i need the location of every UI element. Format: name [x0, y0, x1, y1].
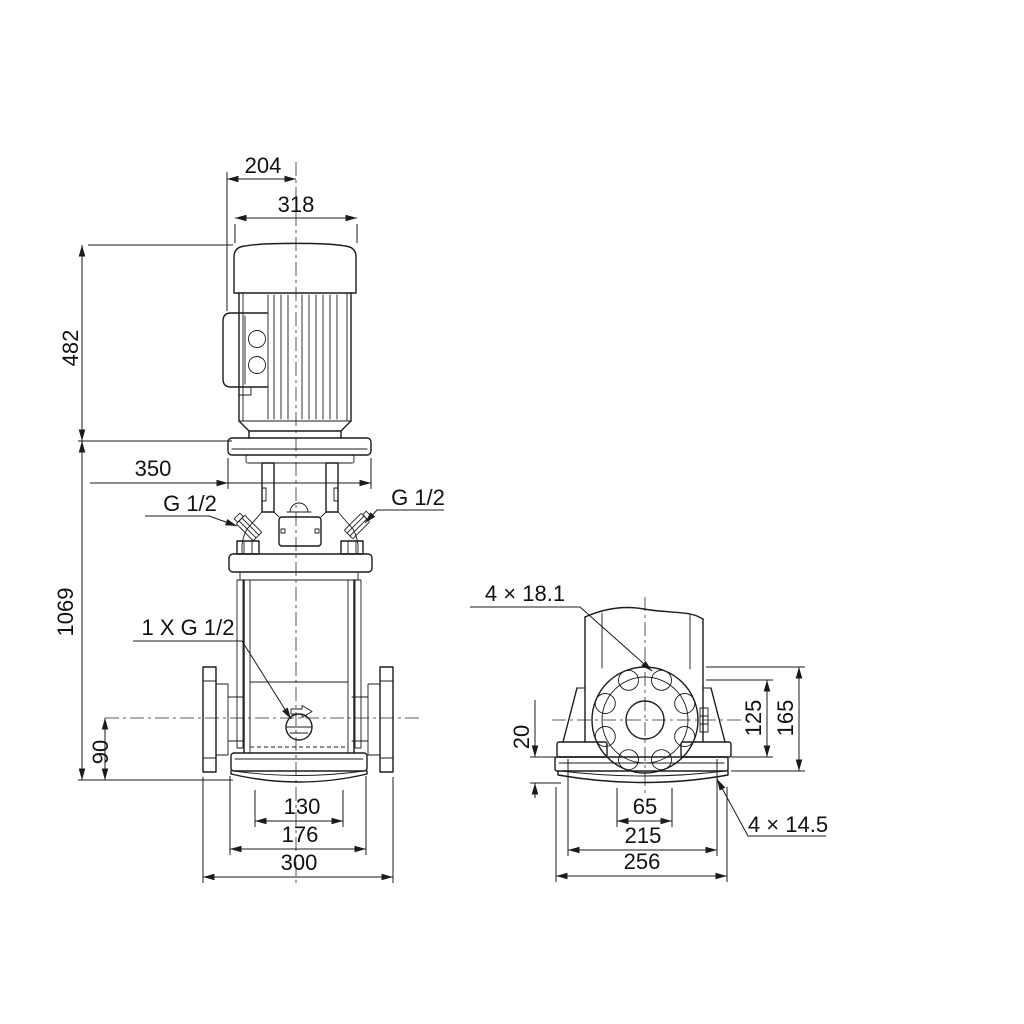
flange-holes-label: 4 × 18.1	[485, 581, 565, 606]
pump-head-plate	[229, 554, 372, 580]
side-stool	[557, 688, 731, 757]
dim-215-label: 215	[625, 823, 662, 848]
drain-plug	[286, 706, 312, 741]
dim-90-label: 90	[88, 740, 113, 764]
flow-direction-icon	[291, 706, 312, 718]
dim-318-label: 318	[278, 192, 315, 217]
motor-body	[239, 293, 351, 438]
dim-65-label: 65	[633, 794, 657, 819]
dim-482-label: 482	[58, 330, 83, 367]
motor-stool	[242, 463, 358, 554]
discharge-flange	[352, 667, 393, 772]
dim-350: 350	[90, 456, 371, 489]
base-holes-label: 4 × 14.5	[748, 812, 828, 837]
pump-dimensional-drawing: 204 318 482 1069 350 90 G 1	[0, 0, 1024, 1024]
staybolt-right	[355, 580, 361, 748]
dim-204-label: 204	[245, 153, 282, 178]
base-holes-callout: 4 × 14.5	[717, 779, 828, 837]
motor-base-plate	[228, 438, 371, 463]
dim-256-label: 256	[624, 849, 661, 874]
dim-350-label: 350	[135, 456, 172, 481]
dim-20: 20	[509, 700, 561, 798]
pump-base	[231, 753, 367, 782]
cable-entry-hole	[249, 331, 266, 348]
dim-90: 90	[88, 718, 113, 780]
dim-318: 318	[235, 192, 357, 243]
hex-plug-left	[237, 541, 259, 554]
gauge-plug-left	[233, 512, 262, 541]
dim-65: 65	[617, 788, 672, 827]
coupling-guard	[279, 503, 321, 546]
hex-plug-right	[341, 541, 363, 554]
plug-right-label: G 1/2	[391, 485, 445, 510]
flange-holes-callout: 4 × 18.1	[470, 581, 652, 671]
plug-callout-right: G 1/2	[365, 485, 445, 523]
staybolt-left	[237, 580, 243, 748]
plug-callout-left: G 1/2	[145, 491, 237, 526]
side-base-plate	[555, 757, 728, 783]
dim-1069-label: 1069	[53, 588, 78, 637]
dim-204: 204	[227, 153, 296, 311]
terminal-box	[223, 313, 267, 395]
plug-left-label: G 1/2	[163, 491, 217, 516]
technical-drawing-page: 204 318 482 1069 350 90 G 1	[0, 0, 1024, 1024]
dim-482: 482	[58, 245, 233, 441]
dim-130-label: 130	[284, 794, 321, 819]
dim-125: 125	[706, 680, 773, 757]
dim-165-label: 165	[773, 700, 798, 737]
dim-125-label: 125	[741, 700, 766, 737]
motor-cooling-fins	[268, 295, 337, 419]
suction-flange	[203, 667, 244, 772]
front-view: 204 318 482 1069 350 90 G 1	[53, 153, 445, 886]
cable-entry-hole	[249, 357, 266, 374]
dim-20-label: 20	[509, 725, 534, 749]
dim-300-label: 300	[281, 850, 318, 875]
drain-label: 1 X G 1/2	[142, 615, 235, 640]
dim-176-label: 176	[282, 822, 319, 847]
motor-fan-cover	[234, 243, 356, 293]
pump-column	[585, 607, 703, 688]
side-view: 4 × 18.1 125 165 20 65 215	[470, 581, 828, 882]
break-line	[585, 607, 703, 619]
